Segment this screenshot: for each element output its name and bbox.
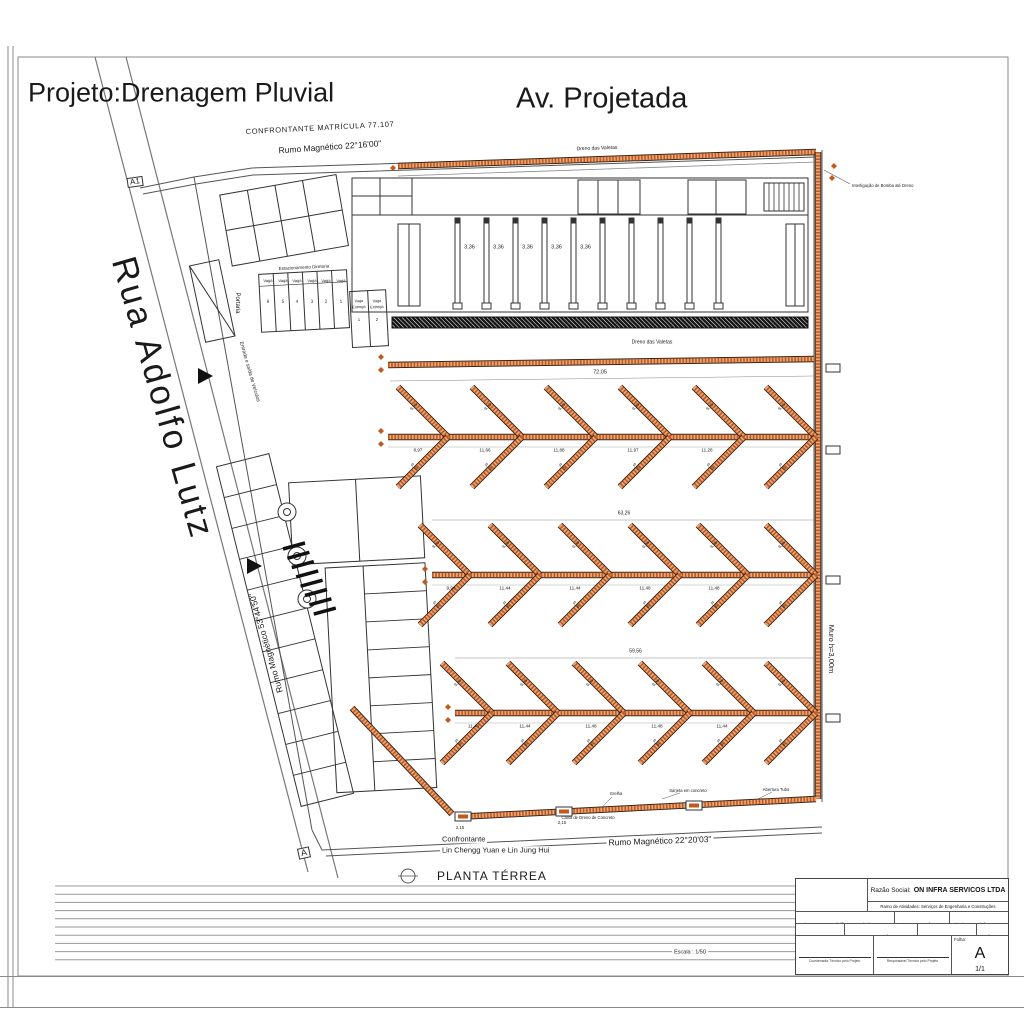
folha-number: 1/1 bbox=[975, 966, 985, 973]
dimension-label: 11,48 bbox=[651, 725, 662, 730]
dreno-valetas-mid-label: Dreno das Valetas bbox=[632, 341, 673, 346]
dimension-label: 6 bbox=[267, 300, 270, 305]
drawing-sheet: Projeto:Drenagem Pluvial Av. Projetada C… bbox=[0, 0, 1024, 1024]
dimension-label: 11,44 bbox=[519, 725, 530, 730]
dimension-label: 11,48 bbox=[708, 587, 719, 592]
dimension-label: Vaga bbox=[278, 279, 287, 283]
portaria-label: Portaria bbox=[234, 292, 240, 313]
sheet-frame bbox=[0, 46, 1024, 1008]
cnpj-value: 44.803.740/0001-67 bbox=[864, 934, 904, 935]
dimension-label: 4 bbox=[296, 300, 299, 305]
razao-social-value: ON INFRA SERVICOS LTDA bbox=[914, 887, 1006, 894]
dimension-label: Vaga bbox=[336, 279, 345, 283]
dimension-label: Abertura Tubo bbox=[763, 788, 790, 792]
endereco-label: Endereço: bbox=[798, 922, 818, 923]
dimension-label: 11,44 bbox=[499, 587, 510, 592]
dimension-label: 1 bbox=[340, 300, 343, 305]
razao-social-label: Razão Social: bbox=[871, 887, 911, 894]
street-label-av-projetada: Av. Projetada bbox=[516, 85, 687, 114]
dimension-label: Entrega bbox=[370, 306, 383, 310]
dimension-label: 3,36 bbox=[580, 245, 591, 251]
dimension-label: 3,36 bbox=[464, 245, 475, 251]
dimension-label: 3 bbox=[310, 300, 313, 305]
dimension-label: 3,36 bbox=[522, 245, 533, 251]
endereco-value: Rua Adolfo Lutz , nº s/n bbox=[822, 922, 872, 923]
dimension-label: 63,26 bbox=[618, 512, 631, 517]
dimension-label: Vaga bbox=[263, 279, 272, 283]
dimension-label: 2 bbox=[376, 318, 379, 322]
lower-building bbox=[289, 476, 437, 794]
confrontante-bottom-line2: Lin Chengg Yuan e Lin Jung Hui bbox=[440, 846, 551, 854]
dimension-label: 2 bbox=[325, 300, 328, 305]
mid-strip-dimension: 72,05 bbox=[593, 370, 607, 376]
confrontante-bottom-line1: Confrontante bbox=[440, 835, 487, 843]
coordenador-label: Coordenador Técnico pelo Projeto bbox=[799, 957, 871, 963]
dimension-label: 11,48 bbox=[585, 725, 596, 730]
dimension-label: 3,36 bbox=[551, 245, 562, 251]
folha-label: Folha: bbox=[954, 937, 966, 942]
dimension-label: Grelha bbox=[610, 792, 623, 796]
scale-label: Escala : 1/50 bbox=[672, 950, 708, 956]
versao-value: 00 bbox=[998, 934, 1003, 935]
ie-label: IE: bbox=[920, 934, 925, 935]
dimension-label: Sarjeta em concreto bbox=[669, 789, 706, 793]
dimension-label: 3,36 bbox=[493, 245, 504, 251]
cidade-label: Cidade: bbox=[952, 922, 967, 923]
versao-label: Versão: bbox=[979, 934, 994, 935]
dimension-label: 11,66 bbox=[479, 449, 490, 454]
dimension-label: Vaga bbox=[322, 279, 331, 283]
responsavel-label: Responsável Técnico pelo Projeto bbox=[877, 957, 949, 963]
wall-label: Muro h=3,00m bbox=[827, 625, 835, 674]
cnpj-label: CNPJ: bbox=[847, 934, 859, 935]
cep-value: 08833-380 bbox=[812, 934, 834, 935]
title-block-logo-cell bbox=[796, 879, 868, 911]
interligacao-label: Interligação de Bomba até Dreno bbox=[852, 184, 913, 188]
dimension-label: Vaga bbox=[355, 300, 364, 304]
dimension-label: 9,96 bbox=[447, 587, 456, 592]
cep-label: CEP: bbox=[798, 934, 808, 935]
folha-letter: A bbox=[975, 945, 986, 963]
dimension-label: Vaga bbox=[307, 279, 316, 283]
dimension-label: Caixa de Dreno de Concreto bbox=[561, 816, 614, 820]
title-block: Razão Social: ON INFRA SERVICOS LTDA Ram… bbox=[795, 878, 1009, 975]
dimension-label: Vaga bbox=[293, 279, 302, 283]
dimension-label: 11,97 bbox=[627, 449, 638, 454]
dimension-label: 11,44 bbox=[716, 725, 727, 730]
project-title: Projeto:Drenagem Pluvial bbox=[28, 80, 334, 107]
warehouse-building bbox=[352, 178, 808, 328]
dimension-label: 2,15 bbox=[558, 821, 566, 825]
drainage-network bbox=[352, 152, 840, 821]
dimension-label: 8,97 bbox=[414, 449, 423, 454]
dimension-label: 2,15 bbox=[456, 826, 464, 830]
ramo-atividades: Ramo de Atividades: Serviços de Engenhar… bbox=[880, 904, 995, 909]
dimension-label: 11,88 bbox=[553, 449, 564, 454]
dimension-label: 11,44 bbox=[569, 587, 580, 592]
dimension-label: Vaga bbox=[373, 300, 382, 304]
bairro-label: Bairro: bbox=[897, 922, 910, 923]
dimension-label: 1 bbox=[358, 318, 361, 322]
dimension-label: 11,48 bbox=[639, 587, 650, 592]
dimension-label: 11,44 bbox=[468, 725, 479, 730]
dimension-label: 59,56 bbox=[629, 650, 642, 655]
dimension-label: 5 bbox=[281, 300, 284, 305]
dimension-label: Entrega bbox=[352, 306, 365, 310]
plan-name-label: PLANTA TÉRREA bbox=[437, 870, 547, 882]
ie-value: 672.413.264.114 bbox=[930, 934, 964, 935]
dimension-label: 11,28 bbox=[701, 449, 712, 454]
